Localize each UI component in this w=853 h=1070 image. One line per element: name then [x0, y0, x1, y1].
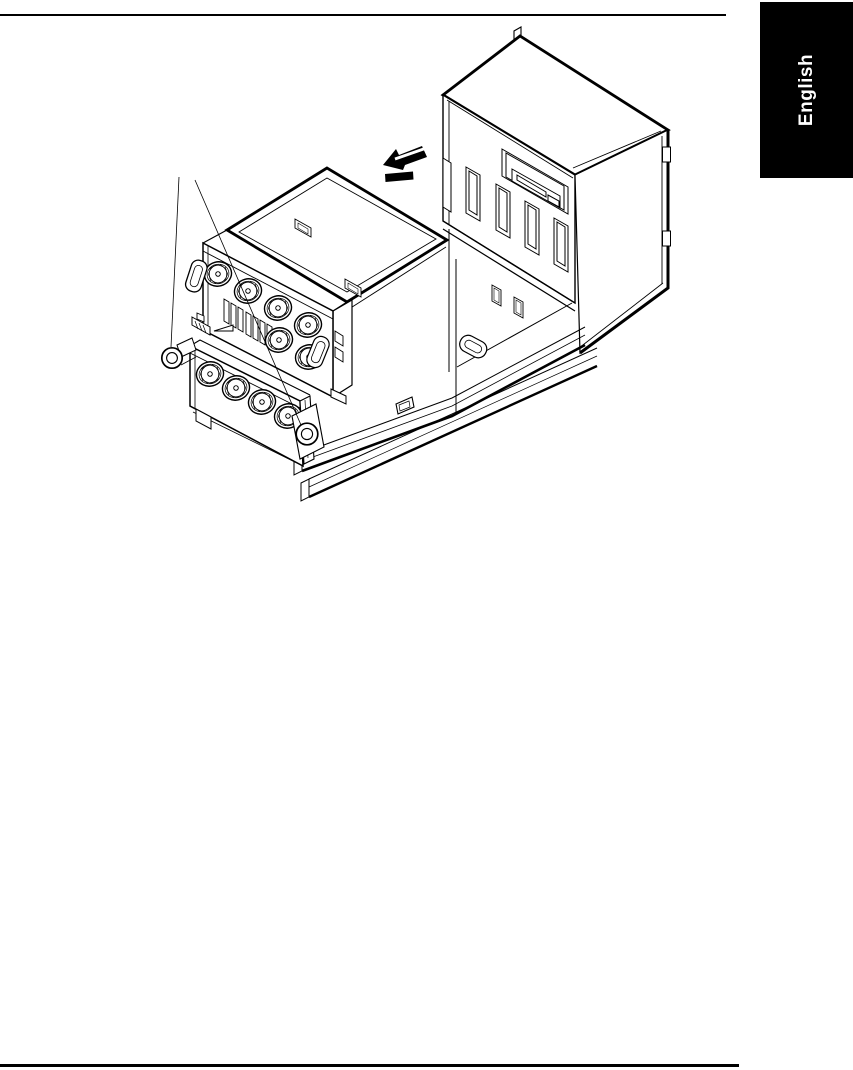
removal-direction-arrow-icon [383, 146, 427, 182]
chassis-bay-handle [457, 332, 490, 360]
chassis-right-notch-top [663, 147, 671, 162]
chassis-right-notch-bottom [663, 231, 671, 246]
chassis-bay-latches [492, 285, 523, 318]
chassis-drawing [443, 27, 671, 412]
manual-page: English [0, 0, 853, 1070]
figure-fan-assembly-removal [0, 0, 853, 1070]
rail-clip [396, 397, 414, 414]
